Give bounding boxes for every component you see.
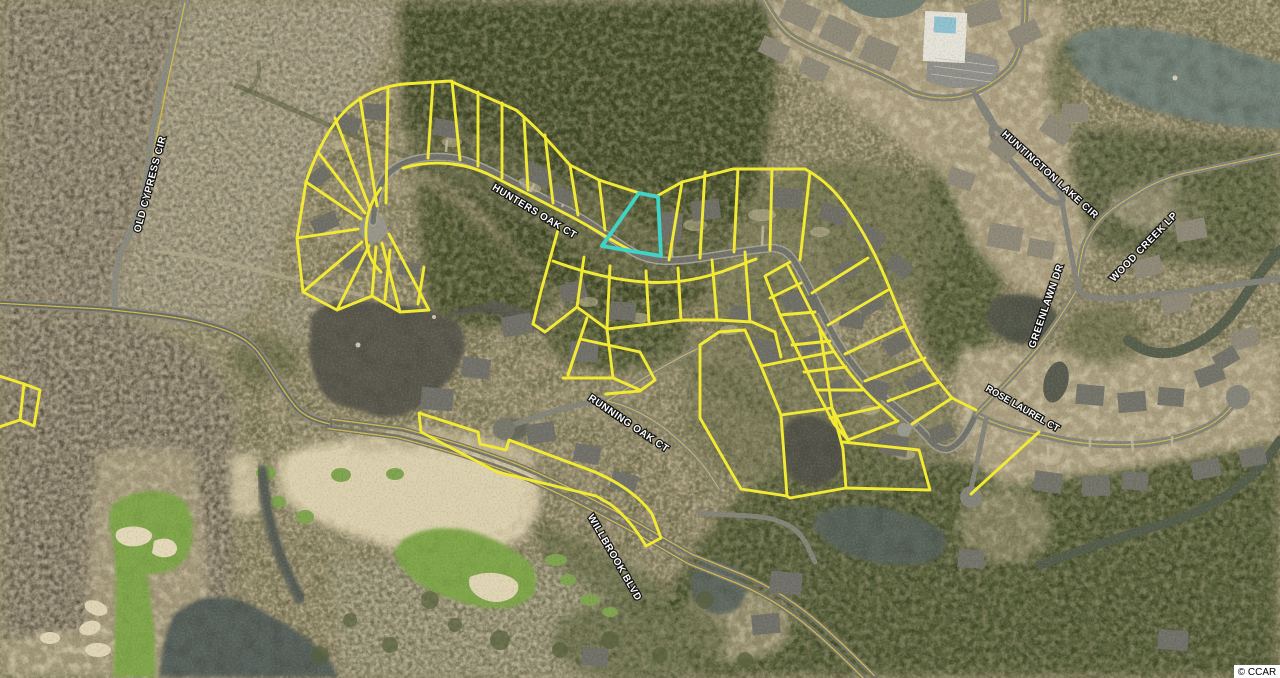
svg-text:© CCAR: © CCAR	[1238, 667, 1276, 678]
